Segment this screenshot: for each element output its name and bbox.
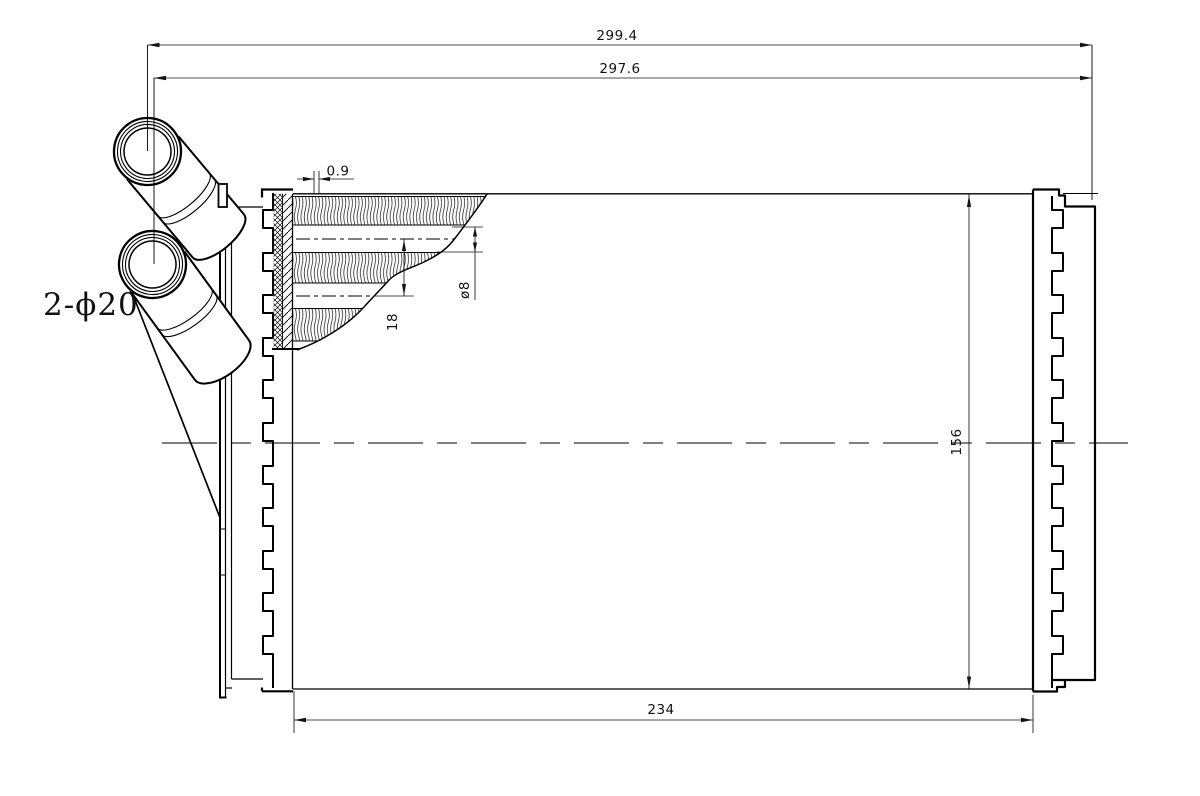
dim-core-height: 156 bbox=[949, 428, 965, 455]
centerlines bbox=[148, 45, 1129, 443]
dimensions bbox=[148, 43, 1093, 733]
dim-tube-pitch: 18 bbox=[385, 313, 401, 331]
left-tank bbox=[219, 186, 300, 698]
plate-tab bbox=[219, 184, 228, 207]
technical-drawing-sheet: 299.4 297.6 0.9 ø8 18 156 234 2-ϕ20 bbox=[0, 0, 1200, 796]
dim-core-width: 234 bbox=[647, 702, 674, 718]
fin-band bbox=[293, 253, 453, 284]
heater-core-drawing: 299.4 297.6 0.9 ø8 18 156 234 2-ϕ20 bbox=[0, 0, 1200, 796]
pipes-label: 2-ϕ20 bbox=[43, 287, 139, 323]
fin-band bbox=[293, 309, 378, 342]
dim-header-width: 297.6 bbox=[599, 61, 640, 77]
right-tank bbox=[1033, 190, 1098, 692]
dim-fin-thickness: 0.9 bbox=[327, 164, 350, 180]
dim-overall-width: 299.4 bbox=[596, 28, 637, 44]
dim-tube-diameter: ø8 bbox=[457, 281, 473, 299]
fin-band bbox=[293, 197, 490, 226]
